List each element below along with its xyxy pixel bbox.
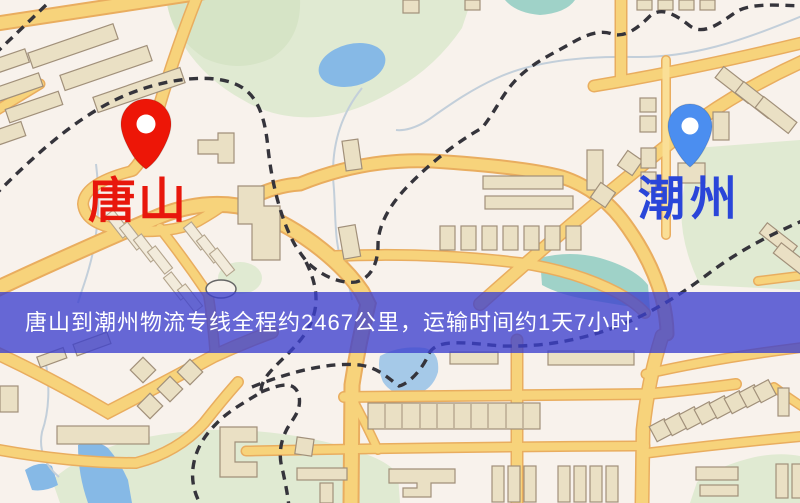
pin-hole [682, 118, 699, 135]
map-canvas [0, 0, 800, 503]
origin-pin-icon[interactable] [121, 99, 171, 169]
route-info-banner: 唐山到潮州物流专线全程约2467公里，运输时间约1天7小时. [0, 292, 800, 353]
route-info-text: 唐山到潮州物流专线全程约2467公里，运输时间约1天7小时. [0, 292, 800, 353]
destination-label: 潮州 [638, 175, 742, 222]
origin-label: 唐山 [88, 178, 188, 226]
map-viewport[interactable]: 唐山 潮州 唐山到潮州物流专线全程约2467公里，运输时间约1天7小时. [0, 0, 800, 503]
pin-hole [137, 115, 156, 134]
